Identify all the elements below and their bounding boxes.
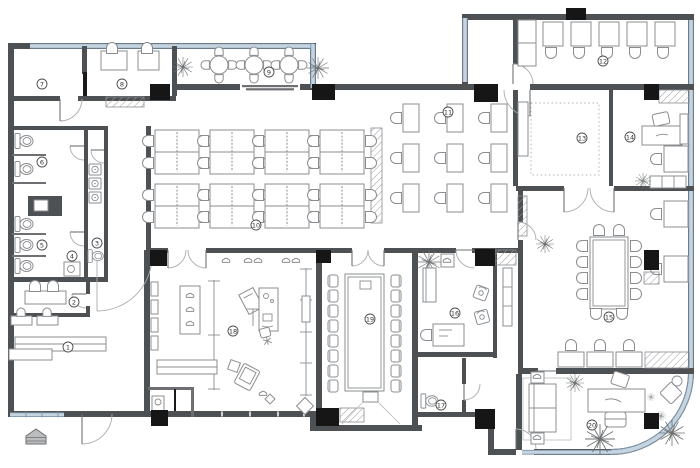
svg-text:3: 3 [95,239,99,247]
room-badge-open-office-east: 11 [443,107,453,117]
room-badge-presentation-room: 19 [365,314,375,324]
svg-text:2: 2 [72,298,76,306]
room-badge-interview-room: 2 [69,297,79,307]
room-badge-toilet-north: 6 [37,157,47,167]
room-badge-outdoor-terrace: 9 [264,67,274,77]
room-badge-executive-office: 20 [587,420,597,430]
svg-text:9: 9 [267,68,271,76]
open-office-west-desks [143,130,377,228]
open-office-east-desks [391,104,508,212]
svg-text:5: 5 [40,241,44,249]
room-badge-toilet-south: 5 [37,240,47,250]
room-badge-open-office-west: 10 [251,220,261,230]
room-badge-training-room: 12 [598,56,608,66]
svg-text:7: 7 [40,80,44,88]
terrace-furniture [173,47,329,83]
floor-plan-drawing: 1234567891011121314151617181920 [0,0,700,468]
room-badge-reception-lounge: 16 [450,308,460,318]
svg-text:11: 11 [444,108,452,116]
training-room-furniture [518,20,675,66]
room-badge-washroom: 3 [92,238,102,248]
room-1-furniture [9,308,106,360]
svg-text:20: 20 [588,421,596,429]
floor-plan-page: 1234567891011121314151617181920 [0,0,700,468]
room-badge-manager-office: 14 [625,132,635,142]
svg-text:6: 6 [40,158,44,166]
room-badge-multipurpose-room: 13 [577,133,587,143]
entrance-marker [26,429,46,444]
room-badge-storage-room: 1 [63,342,73,352]
room-badge-storeroom: 7 [37,79,47,89]
presentation-room-furniture [328,274,401,424]
svg-text:16: 16 [451,309,459,317]
room-badge-admin-office: 8 [117,79,127,89]
svg-text:12: 12 [599,57,607,65]
svg-text:1: 1 [66,343,70,351]
svg-text:17: 17 [437,401,445,409]
svg-text:18: 18 [229,327,237,335]
room-badge-restroom-lobby: 4 [67,251,77,261]
executive-office-furniture [523,371,685,454]
guest-toilet-furniture [421,394,438,408]
room-2-furniture [25,281,66,305]
room-badge-sales-office: 15 [604,312,614,322]
room-badge-showroom: 18 [228,326,238,336]
svg-text:8: 8 [120,80,124,88]
svg-text:19: 19 [366,315,374,323]
svg-text:13: 13 [578,134,586,142]
svg-text:15: 15 [605,313,613,321]
svg-text:14: 14 [626,133,634,141]
svg-text:10: 10 [252,221,260,229]
room-badge-guest-toilet: 17 [436,400,446,410]
svg-text:4: 4 [70,252,74,260]
